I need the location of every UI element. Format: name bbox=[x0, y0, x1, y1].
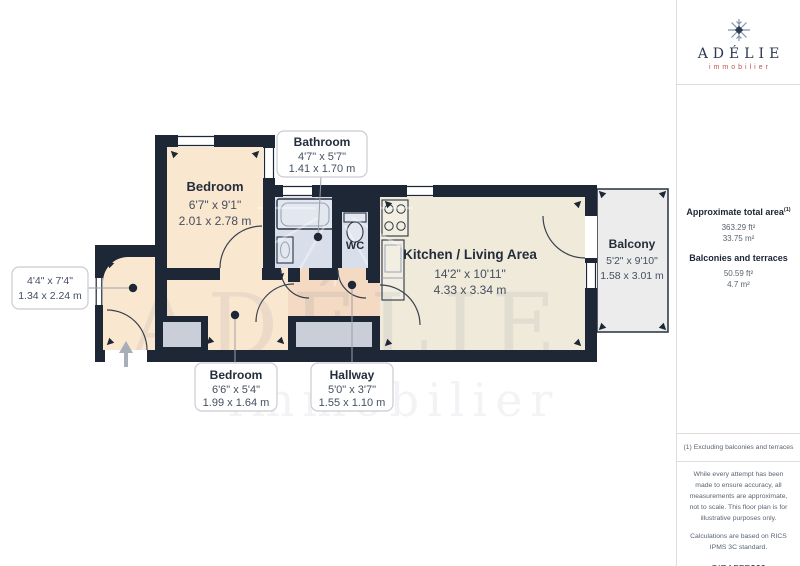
snowflake-icon bbox=[726, 17, 752, 43]
balconies-ft: 50.59 ft² bbox=[677, 268, 800, 279]
disclaimer-measurements: While every attempt has been made to ens… bbox=[686, 470, 791, 524]
disclaimer: While every attempt has been made to ens… bbox=[677, 470, 800, 566]
balcony-door-opening bbox=[585, 216, 597, 258]
kitchen-metric: 4.33 x 3.34 m bbox=[434, 283, 507, 297]
footnote-marker: (1) bbox=[784, 207, 791, 213]
closet-interior bbox=[296, 322, 372, 347]
bedroom-top-name: Bedroom bbox=[186, 179, 243, 194]
window bbox=[585, 263, 597, 288]
bedroom-bottom-label-box: Bedroom 6'6" x 5'4" 1.99 x 1.64 m bbox=[195, 363, 277, 411]
bedroom-top-imperial: 6'7" x 9'1" bbox=[189, 198, 241, 212]
total-area-m: 33.75 m² bbox=[677, 233, 800, 244]
bathroom-label-box: Bathroom 4'7" x 5'7" 1.41 x 1.70 m bbox=[277, 131, 367, 177]
area-summary: Approximate total area(1) 363.29 ft² 33.… bbox=[677, 207, 800, 290]
kitchen-imperial: 14'2" x 10'11" bbox=[434, 267, 506, 281]
brand-tagline: immobilier bbox=[706, 64, 771, 71]
window bbox=[283, 185, 312, 197]
giraffe360-credit: GIRAFFE360 bbox=[686, 562, 791, 566]
kitchen-name: Kitchen / Living Area bbox=[403, 247, 537, 262]
svg-text:5'0" x 3'7": 5'0" x 3'7" bbox=[328, 384, 376, 396]
total-area-ft: 363.29 ft² bbox=[677, 222, 800, 233]
logo-block: ADÉLIE immobilier bbox=[677, 0, 800, 85]
brand-name: ADÉLIE bbox=[693, 46, 785, 62]
svg-text:6'6" x 5'4": 6'6" x 5'4" bbox=[212, 384, 260, 396]
svg-text:1.55 x 1.10 m: 1.55 x 1.10 m bbox=[319, 397, 386, 409]
total-area-label: Approximate total area(1) bbox=[677, 207, 800, 217]
window bbox=[407, 185, 433, 197]
svg-text:1.34 x 2.24 m: 1.34 x 2.24 m bbox=[18, 290, 82, 302]
floorplan-page: ADÉLIE immobilier bbox=[0, 0, 800, 566]
floor-plan-area: ADÉLIE immobilier bbox=[0, 0, 676, 566]
balcony-imperial: 5'2" x 9'10" bbox=[606, 255, 658, 267]
info-panel: ADÉLIE immobilier Approximate total area… bbox=[676, 0, 800, 566]
unlabeled-room-label-box: 4'4" x 7'4" 1.34 x 2.24 m bbox=[12, 267, 88, 309]
balcony-metric: 1.58 x 3.01 m bbox=[600, 270, 664, 282]
floor-plan-svg: ADÉLIE immobilier bbox=[0, 0, 676, 566]
svg-text:1.41 x 1.70 m: 1.41 x 1.70 m bbox=[289, 163, 356, 175]
window bbox=[263, 148, 275, 178]
svg-text:1.99 x 1.64 m: 1.99 x 1.64 m bbox=[203, 397, 270, 409]
closet-interior bbox=[163, 322, 201, 347]
footnote: (1) Excluding balconies and terraces bbox=[677, 433, 800, 462]
svg-text:4'7" x 5'7": 4'7" x 5'7" bbox=[298, 151, 346, 163]
svg-text:Hallway: Hallway bbox=[330, 368, 375, 382]
brand-watermark-tagline: immobilier bbox=[228, 373, 560, 427]
bedroom-top-metric: 2.01 x 2.78 m bbox=[179, 214, 252, 228]
disclaimer-calculations: Calculations are based on RICS IPMS 3C s… bbox=[686, 532, 791, 554]
wc-name: WC bbox=[346, 240, 364, 252]
svg-text:4'4" x 7'4": 4'4" x 7'4" bbox=[27, 275, 73, 287]
stove bbox=[382, 200, 408, 236]
window bbox=[95, 278, 103, 305]
balcony-name: Balcony bbox=[609, 237, 656, 251]
window bbox=[178, 135, 214, 147]
svg-text:Bathroom: Bathroom bbox=[294, 135, 351, 149]
balconies-m: 4.7 m² bbox=[677, 279, 800, 290]
hallway-label-box: Hallway 5'0" x 3'7" 1.55 x 1.10 m bbox=[311, 363, 393, 411]
svg-text:Bedroom: Bedroom bbox=[210, 368, 263, 382]
balconies-label: Balconies and terraces bbox=[677, 253, 800, 263]
